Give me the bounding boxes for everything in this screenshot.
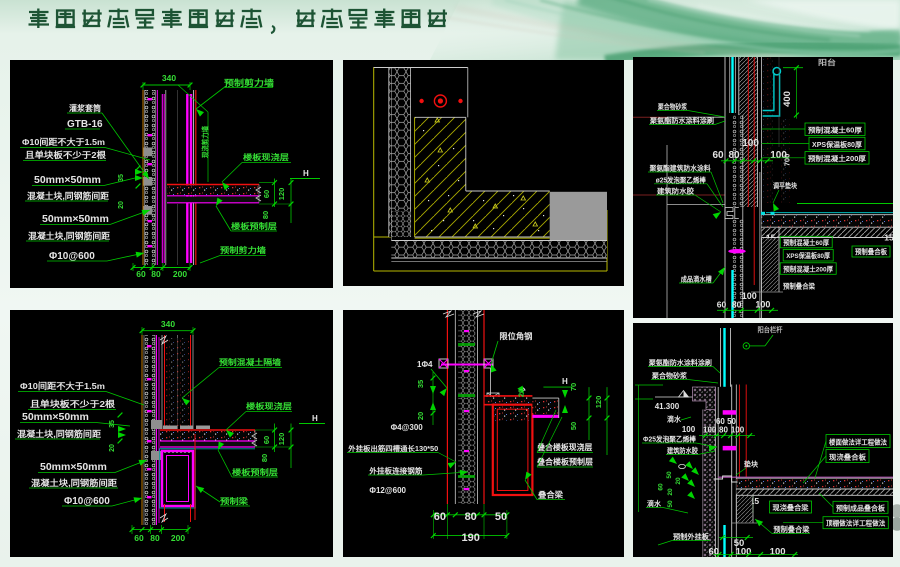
svg-text:楼板预制层: 楼板预制层 <box>232 467 278 477</box>
svg-text:50mm×50mm: 50mm×50mm <box>42 213 109 225</box>
svg-text:35: 35 <box>118 174 125 182</box>
svg-text:混凝土块,同钢筋间距: 混凝土块,同钢筋间距 <box>28 231 111 241</box>
svg-text:50mm×50mm: 50mm×50mm <box>22 411 89 423</box>
svg-text:预制成品叠合板: 预制成品叠合板 <box>836 503 885 512</box>
svg-text:60: 60 <box>262 436 271 444</box>
svg-text:现浇叠合梁: 现浇叠合梁 <box>773 503 809 512</box>
svg-text:41.300: 41.300 <box>655 402 680 411</box>
svg-text:100: 100 <box>736 547 752 558</box>
svg-text:Φ10@600: Φ10@600 <box>49 251 95 262</box>
svg-text:建筑防水胶: 建筑防水胶 <box>667 446 698 455</box>
svg-text:80: 80 <box>719 426 728 435</box>
svg-text:XPS保温板80厚: XPS保温板80厚 <box>786 251 830 260</box>
svg-text:聚氨酯建筑防水涂料: 聚氨酯建筑防水涂料 <box>649 164 711 173</box>
svg-text:且单块板不少于2根: 且单块板不少于2根 <box>25 150 107 160</box>
svg-text:预制混凝土60厚: 预制混凝土60厚 <box>783 238 829 247</box>
svg-text:成品滴水槽: 成品滴水槽 <box>681 275 712 284</box>
svg-text:混凝土块,同钢筋间距: 混凝土块,同钢筋间距 <box>17 429 102 439</box>
svg-text:外挂板连接钢筋: 外挂板连接钢筋 <box>369 466 423 476</box>
svg-text:100: 100 <box>682 425 696 434</box>
svg-text:外挂板出筋四槽通长130*50: 外挂板出筋四槽通长130*50 <box>348 444 438 453</box>
svg-text:H: H <box>562 377 568 386</box>
svg-text:50mm×50mm: 50mm×50mm <box>34 174 101 186</box>
svg-text:现浇剪力墙: 现浇剪力墙 <box>201 126 210 158</box>
svg-text:340: 340 <box>161 319 175 329</box>
svg-text:楼板预制层: 楼板预制层 <box>231 221 277 231</box>
svg-text:20: 20 <box>109 444 116 452</box>
svg-text:100: 100 <box>703 426 717 435</box>
svg-text:预制混凝土隔墙: 预制混凝土隔墙 <box>219 357 281 367</box>
svg-text:ø25发泡聚乙烯棒: ø25发泡聚乙烯棒 <box>656 175 707 184</box>
svg-text:预制剪力墙: 预制剪力墙 <box>220 245 266 255</box>
svg-text:80: 80 <box>732 300 742 310</box>
svg-text:340: 340 <box>162 73 176 83</box>
svg-text:预制外挂板: 预制外挂板 <box>673 532 710 541</box>
svg-text:120: 120 <box>277 188 286 201</box>
svg-text:120: 120 <box>277 433 286 446</box>
svg-text:GTB-16: GTB-16 <box>67 119 103 130</box>
svg-text:35: 35 <box>109 420 116 428</box>
svg-text:聚合物砂浆: 聚合物砂浆 <box>657 102 688 111</box>
svg-text:叠合梁: 叠合梁 <box>538 490 564 500</box>
svg-text:200: 200 <box>173 269 187 279</box>
svg-text:20: 20 <box>517 389 526 397</box>
svg-text:60: 60 <box>712 150 724 161</box>
svg-text:50: 50 <box>569 422 578 430</box>
svg-text:且单块板不少于2根: 且单块板不少于2根 <box>30 399 116 409</box>
svg-text:混凝土块,同钢筋间距: 混凝土块,同钢筋间距 <box>27 191 110 201</box>
svg-text:阳台: 阳台 <box>818 57 837 67</box>
svg-text:Φ12@600: Φ12@600 <box>369 486 406 495</box>
svg-text:灌浆套筒: 灌浆套筒 <box>69 103 101 113</box>
svg-text:100: 100 <box>755 300 770 310</box>
svg-text:预制叠合梁: 预制叠合梁 <box>773 524 809 534</box>
svg-text:顶棚做法详工程做法: 顶棚做法详工程做法 <box>826 519 886 528</box>
svg-text:50: 50 <box>667 500 674 508</box>
svg-text:60: 60 <box>658 483 665 491</box>
svg-text:200: 200 <box>171 533 185 543</box>
svg-text:50: 50 <box>666 471 673 479</box>
svg-text:20: 20 <box>675 477 682 485</box>
svg-text:H: H <box>312 414 318 423</box>
svg-text:400: 400 <box>782 91 793 107</box>
svg-text:楼板现浇层: 楼板现浇层 <box>243 152 289 162</box>
svg-text:预制混凝土200厚: 预制混凝土200厚 <box>808 154 866 163</box>
svg-text:1Φ4: 1Φ4 <box>417 360 433 369</box>
svg-text:35: 35 <box>416 380 425 388</box>
svg-text:预制混凝土200厚: 预制混凝土200厚 <box>783 264 833 273</box>
svg-text:聚氨酯防水涂料涂刷: 聚氨酯防水涂料涂刷 <box>649 116 714 125</box>
svg-text:垫块: 垫块 <box>744 460 759 469</box>
svg-text:80: 80 <box>728 150 740 161</box>
svg-text:现浇叠合板: 现浇叠合板 <box>829 453 866 462</box>
svg-text:100: 100 <box>742 138 759 149</box>
svg-text:Φ10@600: Φ10@600 <box>64 496 110 507</box>
svg-text:20: 20 <box>416 412 425 420</box>
svg-text:预制叠合梁: 预制叠合梁 <box>783 282 816 291</box>
svg-text:预制剪力墙: 预制剪力墙 <box>224 77 274 88</box>
svg-text:调平垫块: 调平垫块 <box>773 181 798 190</box>
svg-text:叠合楼板预制层: 叠合楼板预制层 <box>537 457 593 467</box>
svg-text:100: 100 <box>770 547 786 558</box>
svg-text:楼面做法详工程做法: 楼面做法详工程做法 <box>829 438 887 447</box>
svg-text:Φ4@300: Φ4@300 <box>391 423 424 432</box>
svg-text:70: 70 <box>569 383 578 391</box>
svg-text:60: 60 <box>136 269 146 279</box>
svg-text:楼板现浇层: 楼板现浇层 <box>246 401 292 411</box>
svg-text:80: 80 <box>151 269 161 279</box>
svg-text:阳台栏杆: 阳台栏杆 <box>758 325 783 334</box>
svg-text:限位角钢: 限位角钢 <box>499 331 532 341</box>
svg-text:80: 80 <box>150 533 160 543</box>
svg-text:H: H <box>303 169 309 178</box>
svg-text:20: 20 <box>667 488 674 496</box>
svg-text:700: 700 <box>783 154 792 167</box>
svg-text:滴水: 滴水 <box>647 499 662 508</box>
svg-text:混凝土块,同钢筋间距: 混凝土块,同钢筋间距 <box>31 478 118 488</box>
svg-text:60: 60 <box>434 511 446 523</box>
svg-text:50: 50 <box>495 511 507 523</box>
svg-text:80: 80 <box>260 454 269 462</box>
svg-text:120: 120 <box>594 396 603 409</box>
svg-text:80: 80 <box>261 211 270 219</box>
svg-text:Φ25发泡聚乙烯棒: Φ25发泡聚乙烯棒 <box>643 435 697 444</box>
svg-text:50mm×50mm: 50mm×50mm <box>40 461 107 473</box>
svg-text:预制混凝土60厚: 预制混凝土60厚 <box>808 126 862 135</box>
svg-text:建筑防水胶: 建筑防水胶 <box>657 187 694 196</box>
svg-text:60: 60 <box>717 300 727 310</box>
svg-text:Φ10间距不大于1.5m: Φ10间距不大于1.5m <box>22 137 105 147</box>
svg-text:预制叠合板: 预制叠合板 <box>855 247 887 256</box>
svg-text:60: 60 <box>134 533 144 543</box>
svg-text:聚合物砂浆: 聚合物砂浆 <box>651 371 688 380</box>
svg-text:预制梁: 预制梁 <box>220 496 249 506</box>
svg-text:Φ10间距不大于1.5m: Φ10间距不大于1.5m <box>20 381 105 391</box>
svg-text:80: 80 <box>465 511 477 523</box>
svg-text:聚氨酯防水涂料涂刷: 聚氨酯防水涂料涂刷 <box>648 358 712 367</box>
svg-text:20: 20 <box>118 201 125 209</box>
svg-text:滴水: 滴水 <box>667 415 682 424</box>
svg-text:60: 60 <box>262 190 271 198</box>
svg-text:15: 15 <box>884 233 893 243</box>
svg-text:190: 190 <box>462 532 480 544</box>
svg-text:XPS保温板80厚: XPS保温板80厚 <box>812 140 862 149</box>
